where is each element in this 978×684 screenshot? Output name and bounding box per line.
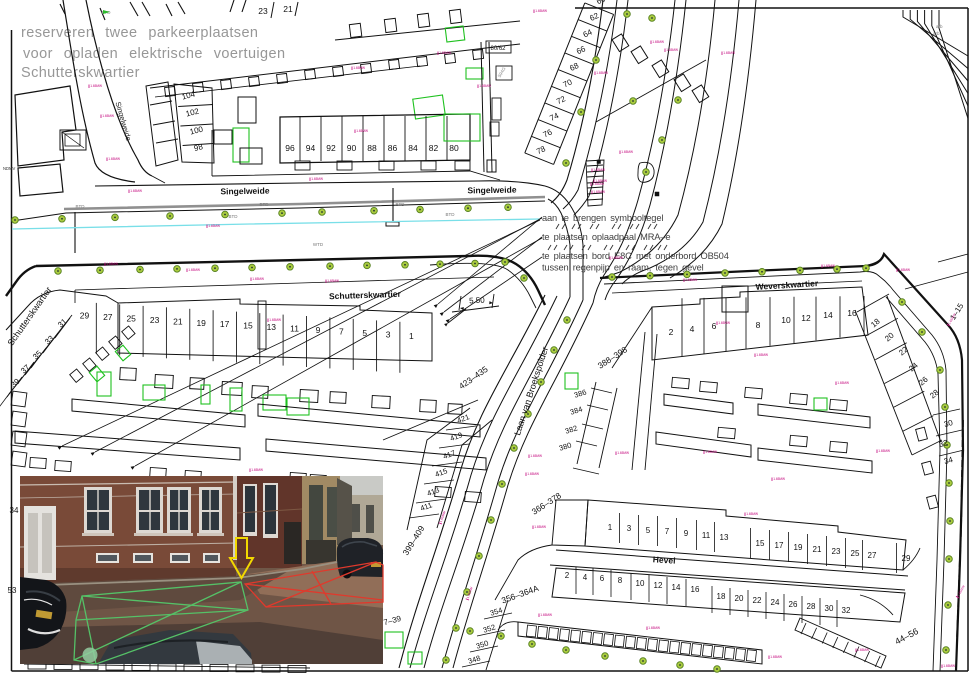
svg-text:4: 4 bbox=[690, 324, 695, 334]
svg-text:12: 12 bbox=[801, 313, 811, 323]
svg-text:6: 6 bbox=[600, 574, 605, 583]
svg-text:84: 84 bbox=[408, 143, 418, 153]
svg-text:32: 32 bbox=[842, 606, 851, 615]
svg-text:1.65MW: 1.65MW bbox=[356, 129, 368, 133]
svg-text:1.65MW: 1.65MW bbox=[823, 264, 835, 268]
svg-text:voor opladen elektrische voert: voor opladen elektrische voertuigen bbox=[23, 46, 285, 62]
svg-text:3: 3 bbox=[386, 329, 391, 339]
svg-text:1.65MW: 1.65MW bbox=[621, 150, 633, 154]
svg-text:27: 27 bbox=[103, 312, 113, 322]
svg-text:1.65MW: 1.65MW bbox=[593, 168, 605, 172]
svg-text:Singelweide: Singelweide bbox=[220, 186, 270, 197]
svg-text:1.65MW: 1.65MW bbox=[106, 262, 118, 266]
svg-text:8: 8 bbox=[618, 576, 623, 585]
svg-text:1.65MW: 1.65MW bbox=[252, 277, 264, 281]
svg-text:1.65MW: 1.65MW bbox=[617, 451, 629, 455]
svg-text:16: 16 bbox=[691, 585, 700, 594]
svg-text:17: 17 bbox=[220, 319, 230, 329]
svg-text:1.65MW: 1.65MW bbox=[534, 525, 546, 529]
svg-text:arb: arb bbox=[933, 31, 940, 36]
svg-text:tussen regenpijp en raam, tege: tussen regenpijp en raam, tegen gevel bbox=[542, 263, 704, 273]
svg-text:Schutterskwartier: Schutterskwartier bbox=[21, 65, 140, 81]
svg-text:1.65MW: 1.65MW bbox=[540, 613, 552, 617]
svg-text:1.65MW: 1.65MW bbox=[311, 177, 323, 181]
svg-text:2: 2 bbox=[565, 571, 570, 580]
svg-text:5.50: 5.50 bbox=[469, 296, 486, 306]
svg-text:21: 21 bbox=[283, 4, 293, 14]
svg-text:4: 4 bbox=[583, 573, 588, 582]
svg-text:1.65MW: 1.65MW bbox=[878, 449, 890, 453]
svg-text:15: 15 bbox=[756, 539, 765, 548]
svg-text:24: 24 bbox=[771, 598, 780, 607]
svg-text:1.65MW: 1.65MW bbox=[251, 468, 263, 472]
svg-text:1.65MW: 1.65MW bbox=[666, 48, 678, 52]
svg-text:17: 17 bbox=[775, 541, 784, 550]
svg-text:13: 13 bbox=[267, 322, 277, 332]
svg-text:1.65MW: 1.65MW bbox=[102, 114, 114, 118]
svg-text:94: 94 bbox=[306, 143, 316, 153]
svg-text:1.65MW: 1.65MW bbox=[652, 40, 664, 44]
svg-text:53: 53 bbox=[8, 586, 17, 595]
svg-text:26: 26 bbox=[789, 600, 798, 609]
svg-text:2: 2 bbox=[669, 327, 674, 337]
svg-text:16: 16 bbox=[847, 308, 857, 318]
svg-text:WTD: WTD bbox=[313, 242, 324, 247]
svg-text:1.65MW: 1.65MW bbox=[773, 477, 785, 481]
svg-text:27: 27 bbox=[868, 551, 877, 560]
svg-text:1.65MW: 1.65MW bbox=[898, 268, 910, 272]
svg-text:22: 22 bbox=[753, 596, 762, 605]
svg-text:1.65MW: 1.65MW bbox=[188, 268, 200, 272]
svg-text:19: 19 bbox=[196, 318, 206, 328]
svg-text:25: 25 bbox=[126, 313, 136, 323]
svg-text:1.65MW: 1.65MW bbox=[208, 224, 220, 228]
svg-text:34: 34 bbox=[10, 506, 19, 515]
svg-text:1: 1 bbox=[409, 331, 414, 341]
svg-text:te plaatsen bord E8C met onder: te plaatsen bord E8C met onderbord OB504 bbox=[542, 251, 729, 261]
svg-text:80/62: 80/62 bbox=[490, 46, 506, 52]
svg-text:5: 5 bbox=[362, 328, 367, 338]
svg-text:te plaatsen oplaadpaal MRA–e: te plaatsen oplaadpaal MRA–e bbox=[542, 232, 670, 242]
svg-text:21: 21 bbox=[813, 545, 822, 554]
svg-text:10: 10 bbox=[636, 579, 645, 588]
svg-text:92: 92 bbox=[326, 143, 336, 153]
svg-text:21: 21 bbox=[173, 316, 183, 326]
svg-text:1.65MW: 1.65MW bbox=[353, 66, 365, 70]
svg-text:80: 80 bbox=[449, 143, 459, 153]
svg-text:30: 30 bbox=[825, 604, 834, 613]
svg-text:7: 7 bbox=[665, 527, 670, 536]
svg-text:1.65MW: 1.65MW bbox=[705, 450, 717, 454]
svg-text:1.65MW: 1.65MW bbox=[685, 278, 697, 282]
svg-text:11: 11 bbox=[290, 324, 299, 334]
svg-text:1.65MW: 1.65MW bbox=[108, 157, 120, 161]
svg-text:1.65MW: 1.65MW bbox=[90, 84, 102, 88]
svg-text:1.65MW: 1.65MW bbox=[648, 626, 660, 630]
svg-text:7: 7 bbox=[339, 326, 344, 336]
svg-text:1.65MW: 1.65MW bbox=[611, 256, 623, 260]
svg-text:6: 6 bbox=[712, 321, 717, 331]
svg-text:28: 28 bbox=[807, 602, 816, 611]
svg-text:88: 88 bbox=[367, 143, 377, 153]
svg-text:1.65MW: 1.65MW bbox=[837, 381, 849, 385]
svg-text:5: 5 bbox=[646, 526, 651, 535]
svg-text:15: 15 bbox=[243, 321, 253, 331]
svg-text:3: 3 bbox=[627, 524, 632, 533]
svg-text:BTD: BTD bbox=[446, 212, 456, 217]
svg-text:1.65MW: 1.65MW bbox=[269, 318, 281, 322]
svg-text:1.65MW: 1.65MW bbox=[718, 321, 730, 325]
svg-text:1.65MW: 1.65MW bbox=[746, 512, 758, 516]
svg-text:reserveren twee parkeerplaatse: reserveren twee parkeerplaatsen bbox=[21, 25, 258, 41]
svg-text:1.65MW: 1.65MW bbox=[530, 454, 542, 458]
svg-text:1.65MW: 1.65MW bbox=[130, 189, 142, 193]
svg-text:96: 96 bbox=[285, 143, 295, 153]
svg-text:18: 18 bbox=[717, 592, 726, 601]
svg-text:10: 10 bbox=[781, 315, 791, 325]
svg-text:1.65MW: 1.65MW bbox=[943, 664, 955, 668]
svg-text:1.65MW: 1.65MW bbox=[479, 84, 491, 88]
svg-text:8: 8 bbox=[756, 320, 761, 330]
svg-text:Hevel: Hevel bbox=[653, 554, 676, 565]
svg-text:1.65MW: 1.65MW bbox=[327, 279, 339, 283]
svg-text:14: 14 bbox=[823, 310, 833, 320]
svg-text:1.65MW: 1.65MW bbox=[723, 51, 735, 55]
svg-text:BTD: BTD bbox=[229, 214, 239, 219]
svg-text:23: 23 bbox=[150, 315, 160, 325]
svg-text:29: 29 bbox=[902, 554, 911, 563]
svg-text:86: 86 bbox=[388, 143, 398, 153]
svg-text:1.65MW: 1.65MW bbox=[439, 51, 451, 55]
svg-text:9: 9 bbox=[684, 529, 689, 538]
svg-text:BTD: BTD bbox=[76, 204, 86, 209]
svg-text:aan te brengen symbooltegel: aan te brengen symbooltegel bbox=[542, 213, 663, 223]
svg-text:1.65MW: 1.65MW bbox=[535, 9, 547, 13]
svg-text:90: 90 bbox=[347, 143, 357, 153]
svg-text:1.65MW: 1.65MW bbox=[770, 655, 782, 659]
svg-text:1.65MW: 1.65MW bbox=[756, 353, 768, 357]
svg-text:1.65MW: 1.65MW bbox=[593, 190, 605, 194]
svg-text:14: 14 bbox=[672, 583, 681, 592]
svg-text:1.65MW: 1.65MW bbox=[857, 648, 869, 652]
svg-text:19: 19 bbox=[794, 543, 803, 552]
svg-text:12: 12 bbox=[654, 581, 663, 590]
svg-text:11: 11 bbox=[702, 531, 711, 540]
svg-text:29: 29 bbox=[80, 311, 90, 321]
svg-text:NDMV: NDMV bbox=[3, 166, 16, 171]
svg-text:82: 82 bbox=[429, 143, 439, 153]
svg-text:13: 13 bbox=[720, 533, 729, 542]
svg-text:arb: arb bbox=[936, 24, 943, 29]
svg-text:1.65MW: 1.65MW bbox=[592, 182, 604, 186]
svg-text:BTD: BTD bbox=[396, 202, 406, 207]
svg-text:20: 20 bbox=[735, 594, 744, 603]
svg-text:Singelweide: Singelweide bbox=[467, 185, 517, 196]
svg-text:1.65MW: 1.65MW bbox=[596, 71, 608, 75]
svg-text:23: 23 bbox=[832, 547, 841, 556]
svg-text:25: 25 bbox=[851, 549, 860, 558]
svg-text:9: 9 bbox=[316, 325, 321, 335]
svg-text:BTD: BTD bbox=[260, 202, 270, 207]
svg-text:23: 23 bbox=[258, 6, 268, 16]
svg-text:1: 1 bbox=[608, 523, 613, 532]
svg-text:1.65MW: 1.65MW bbox=[527, 472, 539, 476]
